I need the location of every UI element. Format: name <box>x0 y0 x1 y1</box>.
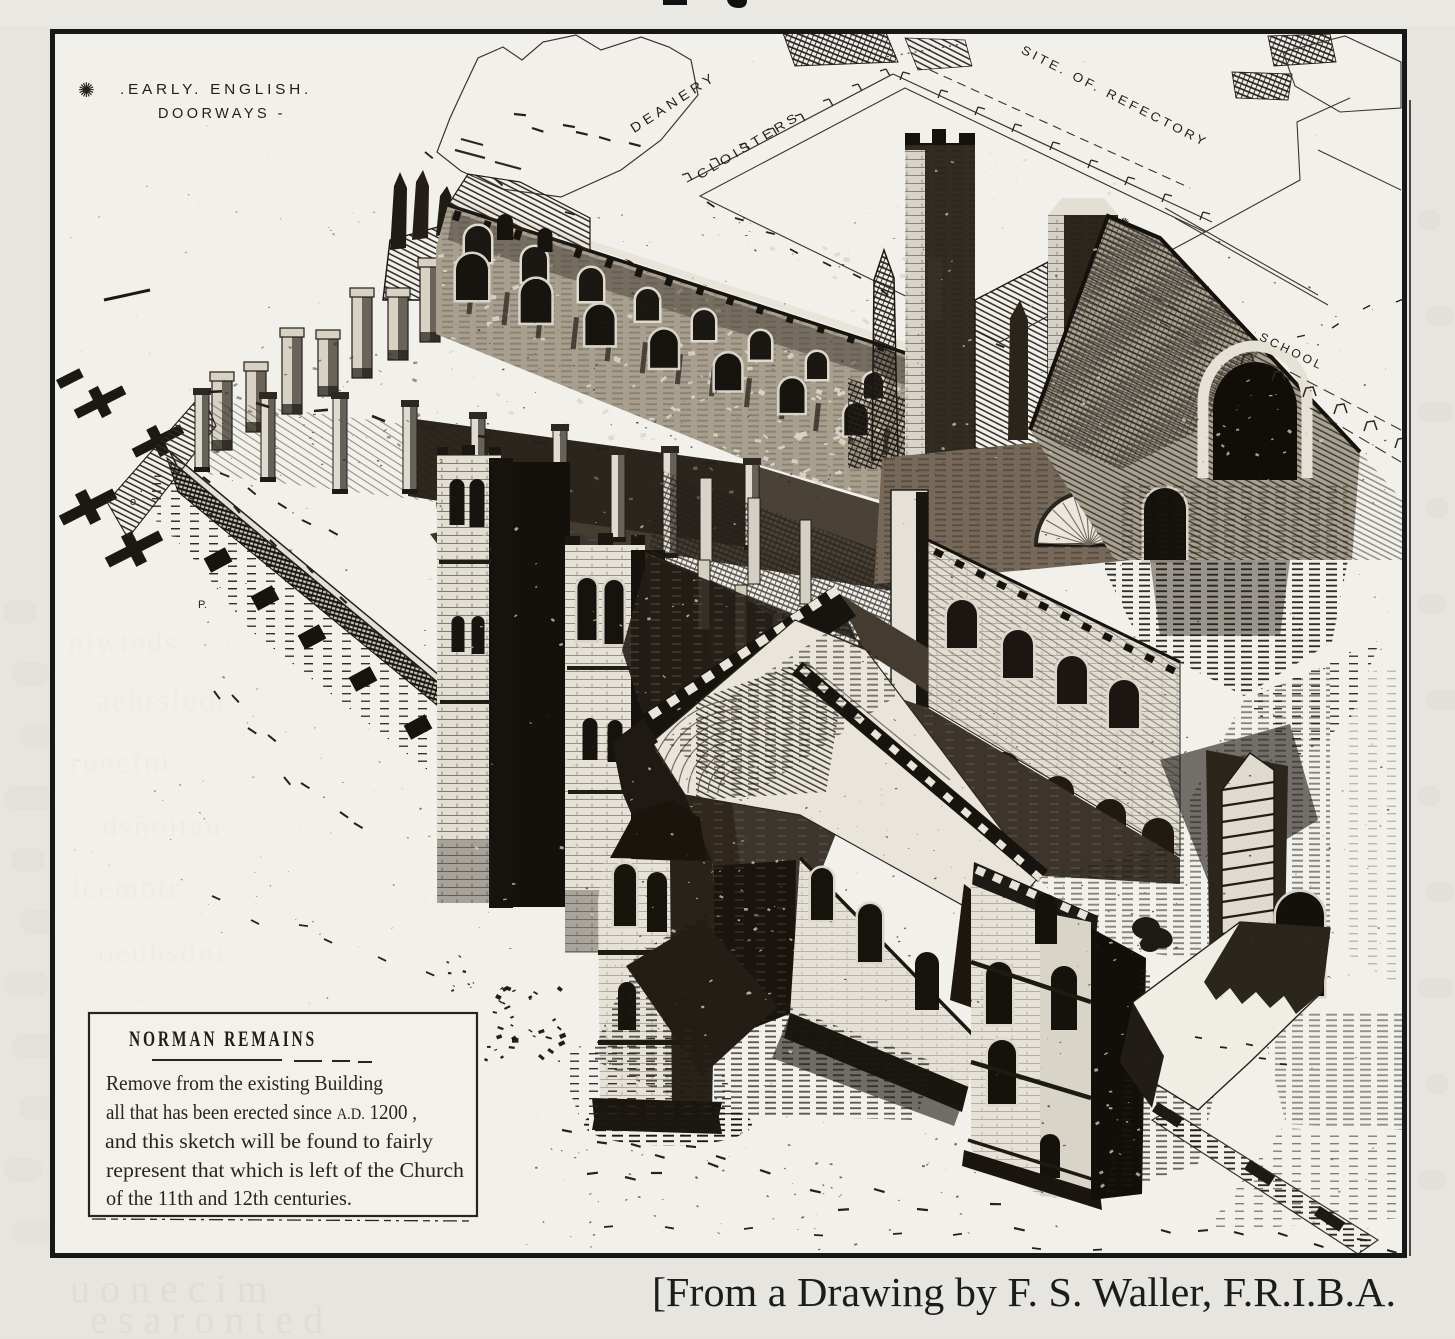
svg-text:represent that which is left o: represent that which is left of the Chur… <box>106 1158 465 1182</box>
svg-text:all that has been erected sinc: all that has been erected since A.D. 120… <box>106 1100 417 1124</box>
svg-text:dsnoitau: dsnoitau <box>102 808 223 843</box>
svg-text:of the 11th and 12th centuries: of the 11th and 12th centuries. <box>106 1186 352 1210</box>
svg-text:oeuhsdni: oeuhsdni <box>98 934 226 969</box>
svg-text:lcembtr: lcembtr <box>72 870 181 905</box>
svg-text:NORMAN REMAINS: NORMAN REMAINS <box>129 1026 317 1051</box>
svg-text:✺: ✺ <box>78 80 95 102</box>
svg-text:e s a r o n t e d: e s a r o n t e d <box>90 1297 323 1334</box>
svg-text:.EARLY. ENGLISH.: .EARLY. ENGLISH. <box>120 82 312 98</box>
svg-text:and this sketch will be found: and this sketch will be found to fairly <box>105 1129 434 1153</box>
svg-text:Remove from the existing Build: Remove from the existing Building <box>106 1071 383 1095</box>
svg-text:niwteds: niwteds <box>68 624 178 659</box>
svg-text:DOORWAYS -: DOORWAYS - <box>158 106 286 122</box>
svg-text:aehrslodt: aehrslodt <box>96 682 228 717</box>
svg-text:[From a Drawing by F. S. Walle: [From a Drawing by F. S. Waller, F.R.I.B… <box>652 1269 1396 1315</box>
svg-text:P.: P. <box>198 599 207 611</box>
svg-text:ruecfni: ruecfni <box>70 744 172 779</box>
